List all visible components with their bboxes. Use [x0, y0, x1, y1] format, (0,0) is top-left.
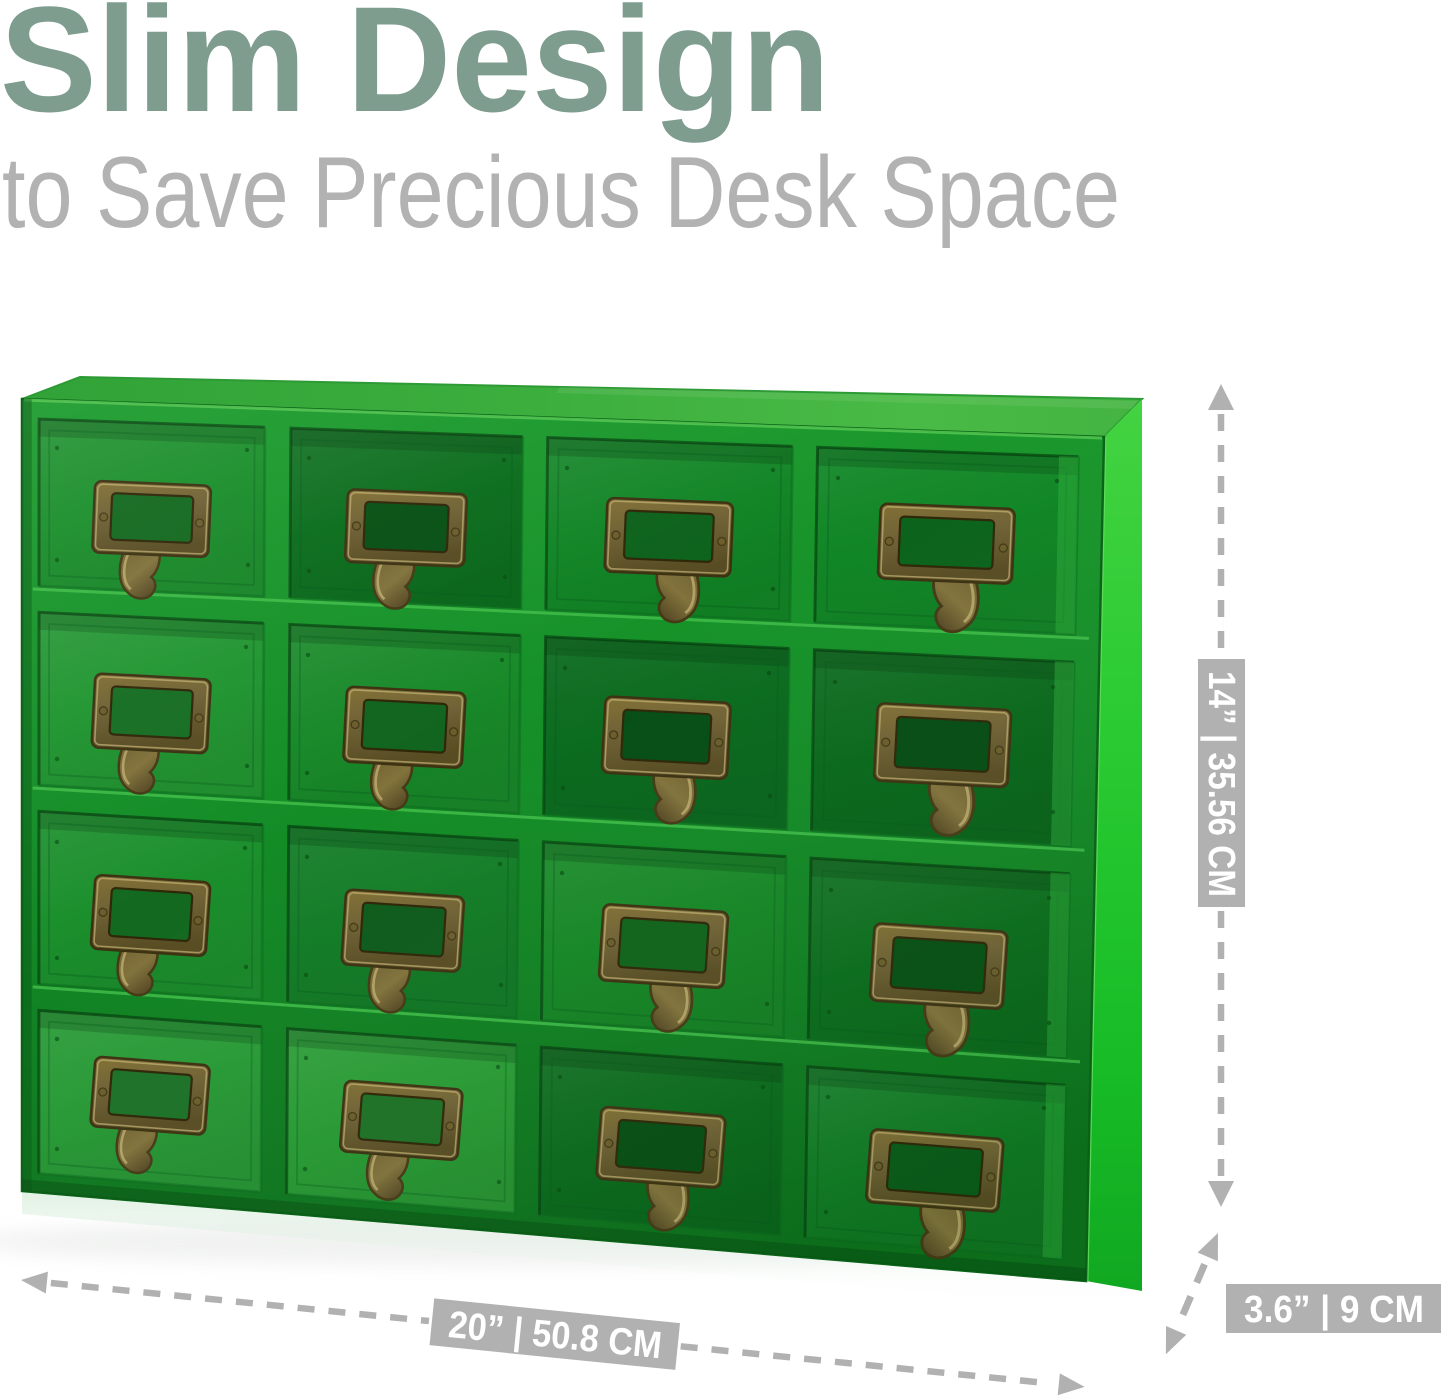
svg-text:to Save Precious Desk Space: to Save Precious Desk Space: [2, 137, 1120, 249]
svg-text:3.6” | 9 CM: 3.6” | 9 CM: [1244, 1289, 1424, 1331]
svg-text:Slim Design: Slim Design: [0, 0, 830, 143]
svg-text:14” | 35.56 CM: 14” | 35.56 CM: [1200, 671, 1242, 897]
